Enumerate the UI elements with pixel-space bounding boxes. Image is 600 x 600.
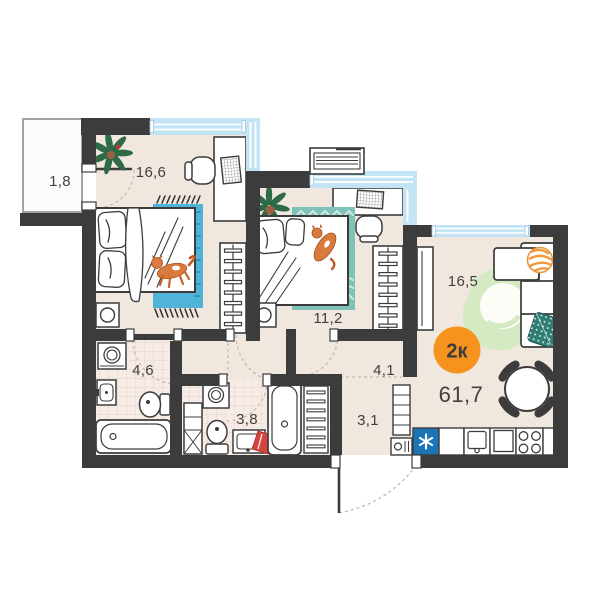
nightstand — [96, 303, 119, 327]
ac-unit-icon — [310, 148, 364, 174]
worktop — [490, 428, 516, 455]
bathtub-icon — [268, 381, 301, 455]
area-label-bedroom-main: 16,6 — [136, 164, 166, 181]
jamb — [219, 374, 227, 386]
wall — [252, 171, 312, 188]
bathroom-door-leaf — [133, 334, 177, 340]
wall — [267, 374, 330, 386]
desk-chair — [356, 216, 382, 242]
washing-machine-icon — [203, 383, 229, 408]
area-label-bathroom: 4,6 — [132, 362, 154, 379]
monitor-icon — [356, 190, 383, 209]
bed-icon — [95, 208, 195, 302]
total-area-label: 61,7 — [439, 382, 484, 407]
badge-label: 2к — [446, 341, 468, 363]
wall — [330, 374, 342, 455]
wall — [20, 213, 82, 226]
kitchen-row — [413, 428, 555, 455]
jamb — [412, 455, 421, 468]
wall — [336, 329, 406, 341]
hall-cabinet — [391, 438, 412, 455]
area-label-bathroom-small: 3,8 — [236, 411, 258, 428]
wardrobe-icon — [373, 246, 403, 335]
dining-table-icon — [503, 365, 552, 414]
area-label-balcony: 1,8 — [49, 173, 71, 190]
jamb — [226, 329, 234, 341]
wall — [403, 225, 417, 377]
wall — [417, 225, 433, 237]
round-pillow — [528, 248, 553, 273]
wall — [170, 341, 182, 455]
jamb — [82, 202, 96, 210]
desk-icon — [214, 137, 246, 221]
tall-cabinet — [417, 247, 433, 330]
wall — [246, 171, 260, 341]
floor-plan: 1,8 16,6 11,2 16,5 4,6 3,8 4,1 3,1 61,7 … — [0, 0, 600, 600]
wall — [414, 455, 568, 468]
storage-cabinet — [184, 403, 202, 454]
area-label-bedroom-second: 11,2 — [313, 310, 342, 327]
jamb — [174, 329, 182, 341]
kitchen-sink-icon — [464, 428, 490, 455]
area-label-living: 16,5 — [448, 273, 478, 290]
entry-door-arc — [339, 468, 414, 513]
toilet-icon — [206, 421, 228, 455]
apartment-type-badge: 2к — [434, 327, 481, 374]
area-label-hallway: 4,1 — [373, 362, 395, 379]
bathtub-icon — [96, 420, 171, 453]
stove-icon — [516, 428, 543, 455]
washing-machine-icon — [98, 343, 126, 369]
jamb — [330, 329, 338, 341]
window-living — [432, 225, 530, 237]
towel-rail-icon — [304, 386, 328, 453]
jamb — [263, 374, 271, 386]
jamb — [331, 455, 340, 468]
asterisk-appliance-icon — [413, 428, 439, 455]
area-label-entry: 3,1 — [357, 412, 379, 429]
wall — [82, 329, 133, 341]
jamb — [126, 329, 134, 341]
wall — [82, 455, 337, 468]
counter — [439, 428, 464, 455]
wall — [553, 225, 568, 468]
wall — [529, 225, 555, 237]
monitor-icon — [221, 156, 242, 184]
wall-stub — [286, 329, 296, 376]
wall — [177, 329, 232, 341]
balcony-floor — [23, 119, 82, 212]
jamb — [82, 164, 96, 172]
floor-plan-page: 1,8 16,6 11,2 16,5 4,6 3,8 4,1 3,1 61,7 … — [0, 0, 600, 600]
hall-shelf — [393, 385, 410, 435]
wardrobe-icon — [220, 243, 246, 333]
toilet-icon — [140, 392, 171, 417]
sink-icon — [94, 380, 116, 405]
